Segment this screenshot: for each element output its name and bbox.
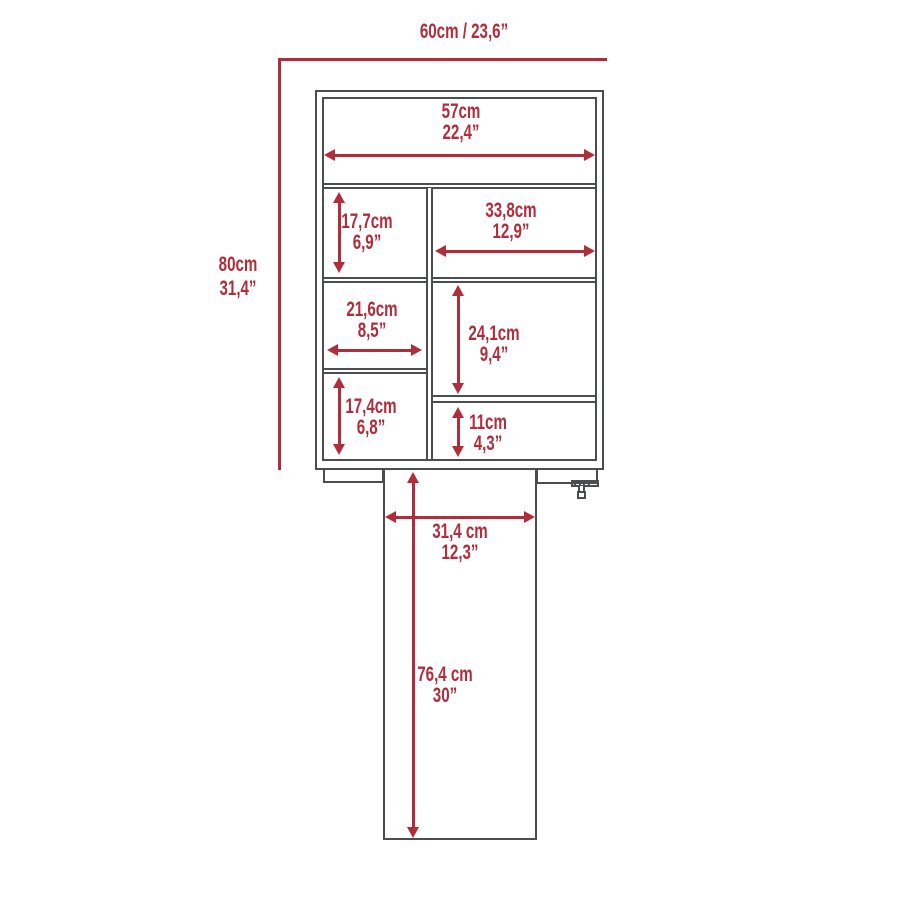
dimension-in: 22,4” [411,122,512,143]
middle-right-height-label: 24,1cm 9,4” [444,323,545,365]
dimension-diagram: 60cm / 23,6” 80cm 31,4” 57cm 22,4” 17,7c… [0,0,900,900]
shelf-right-lower [433,395,595,403]
overall-width-extent-line [278,58,607,61]
dimension-cm: 57cm [411,101,512,122]
upper-left-height-label: 17,7cm 6,9” [317,211,418,253]
middle-left-width-label: 21,6cm 8,5” [322,299,423,341]
upper-right-width-arrow [435,245,595,257]
dimension-cm: 76,4 cm [395,664,496,685]
dimension-in: 9,4” [444,344,545,365]
dimension-in: 12,3” [410,542,511,563]
dimension-cm: 80cm [188,253,289,277]
dimension-text: 60cm / 23,6” [414,21,515,42]
desk-width-label: 31,4 cm 12,3” [410,521,511,563]
inner-width-label: 57cm 22,4” [411,101,512,143]
shelf-right-upper [433,277,595,283]
overall-height-label: 80cm 31,4” [188,253,289,301]
plinth-left [323,468,384,483]
dimension-in: 12,9” [461,221,562,242]
overall-width-label: 60cm / 23,6” [414,21,515,42]
dimension-in: 6,9” [317,232,418,253]
inner-width-arrow [324,149,595,161]
dimension-cm: 31,4 cm [410,521,511,542]
middle-left-width-arrow [327,344,422,356]
shelf-left-upper [324,277,426,283]
dimension-in: 8,5” [322,320,423,341]
dimension-cm: 11cm [438,412,539,433]
dimension-cm: 24,1cm [444,323,545,344]
hinge-foot [577,491,586,499]
dimension-cm: 33,8cm [461,200,562,221]
dimension-cm: 17,7cm [317,211,418,232]
shelf-left-lower [324,368,426,374]
dimension-in: 6,8” [321,417,422,438]
dimension-in: 30” [395,685,496,706]
dimension-cm: 21,6cm [322,299,423,320]
center-divider [426,188,433,459]
shelf-top-full [324,183,595,189]
lower-right-height-label: 11cm 4,3” [438,412,539,454]
dimension-cm: 17,4cm [321,396,422,417]
lower-left-height-label: 17,4cm 6,8” [321,396,422,438]
upper-right-width-label: 33,8cm 12,9” [461,200,562,242]
dimension-in: 31,4” [188,277,289,301]
desk-height-label: 76,4 cm 30” [395,664,496,706]
dimension-in: 4,3” [438,433,539,454]
